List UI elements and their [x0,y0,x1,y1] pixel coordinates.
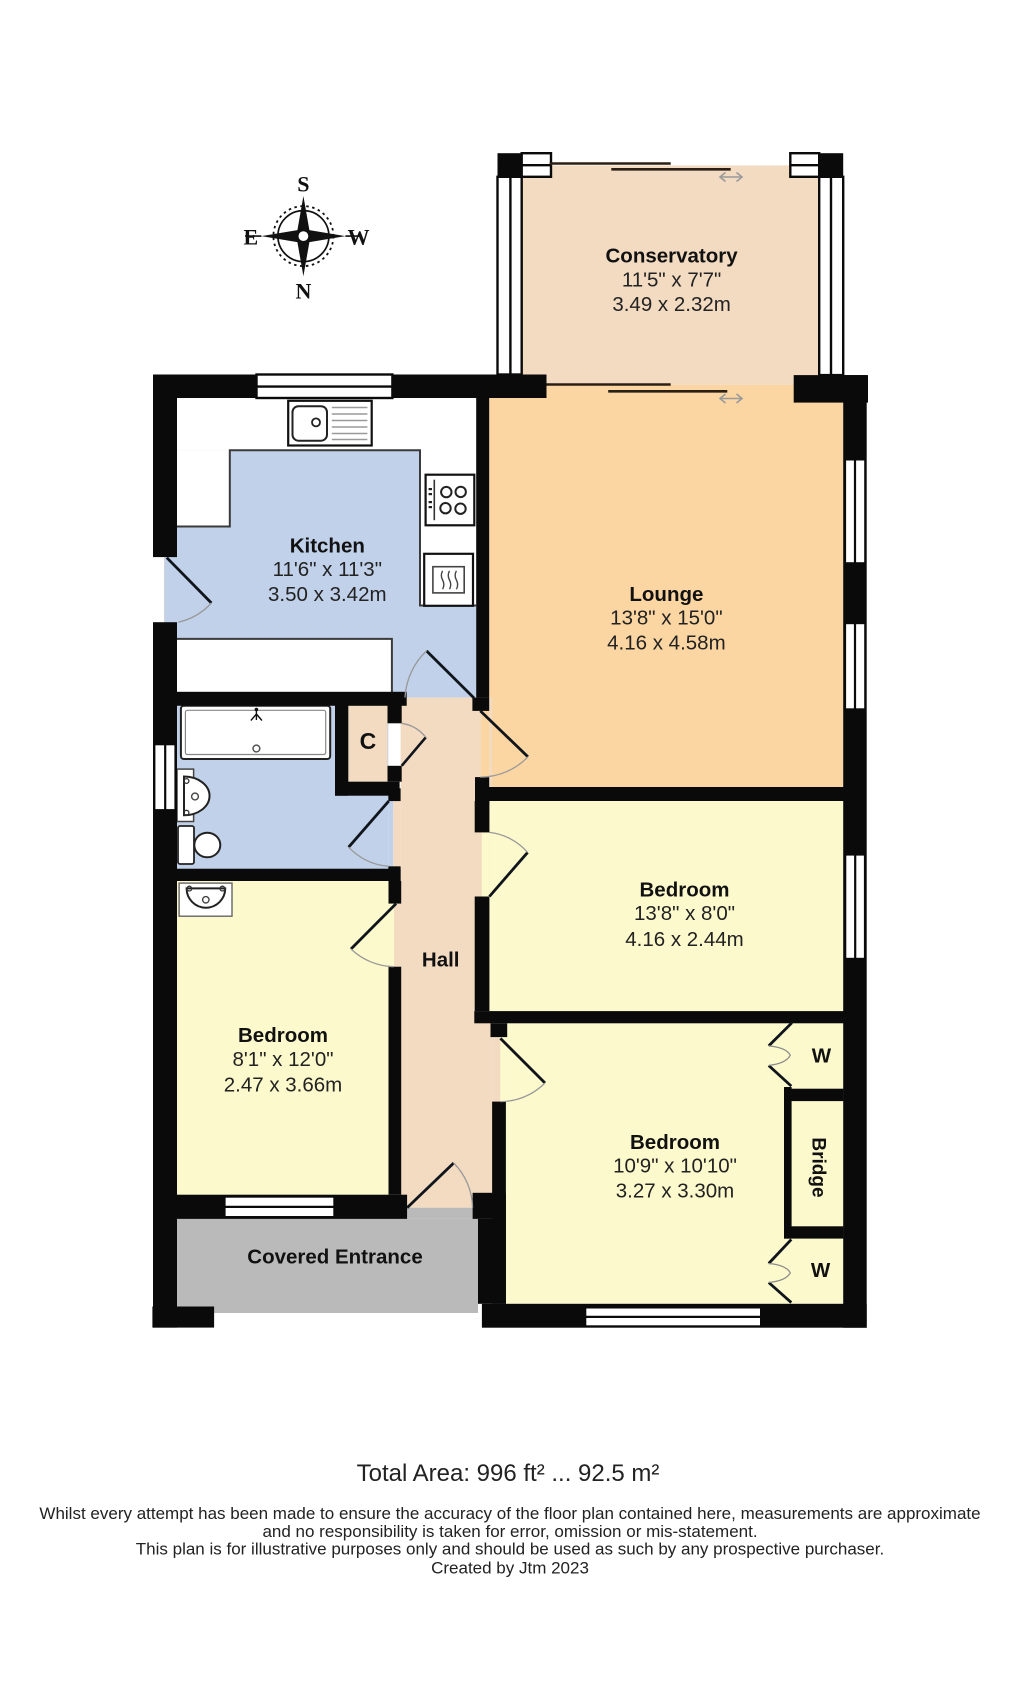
svg-text:Bedroom: Bedroom [238,1024,328,1047]
svg-text:Total Area: 996 ft² ... 92.5 m: Total Area: 996 ft² ... 92.5 m² [357,1460,660,1487]
svg-text:4.16 x 2.44m: 4.16 x 2.44m [625,928,744,951]
svg-text:13'8" x 8'0": 13'8" x 8'0" [634,902,735,925]
svg-text:11'6" x 11'3": 11'6" x 11'3" [273,558,382,581]
svg-text:3.50 x 3.42m: 3.50 x 3.42m [268,583,387,606]
svg-text:2.47 x 3.66m: 2.47 x 3.66m [224,1074,343,1097]
svg-text:8'1" x 12'0": 8'1" x 12'0" [232,1048,333,1071]
svg-text:Whilst every attempt has been: Whilst every attempt has been made to en… [39,1504,980,1523]
svg-text:W: W [348,225,370,250]
svg-text:Bedroom: Bedroom [630,1131,720,1154]
svg-text:C: C [360,728,377,754]
svg-text:E: E [243,225,258,250]
svg-text:Covered Entrance: Covered Entrance [247,1246,422,1269]
svg-text:N: N [295,279,311,304]
svg-text:Bedroom: Bedroom [640,879,730,902]
svg-text:Hall: Hall [422,949,460,972]
svg-text:W: W [811,1259,831,1282]
svg-text:13'8" x 15'0": 13'8" x 15'0" [610,607,722,630]
svg-text:3.27 x 3.30m: 3.27 x 3.30m [616,1180,735,1203]
svg-text:4.16 x 4.58m: 4.16 x 4.58m [607,632,726,655]
svg-text:Kitchen: Kitchen [290,534,365,557]
svg-text:S: S [297,172,309,197]
svg-text:W: W [812,1045,832,1068]
svg-text:Bridge: Bridge [808,1137,829,1197]
svg-text:Lounge: Lounge [629,583,703,606]
svg-text:11'5" x 7'7": 11'5" x 7'7" [622,268,722,291]
svg-text:Created by Jtm 2023: Created by Jtm 2023 [431,1559,589,1578]
svg-text:This plan is for illustrative: This plan is for illustrative purposes o… [136,1540,884,1559]
svg-text:and no responsibility is taken: and no responsibility is taken for error… [262,1522,757,1541]
svg-text:10'9" x 10'10": 10'9" x 10'10" [613,1155,737,1178]
svg-text:Conservatory: Conservatory [606,245,739,268]
svg-text:3.49 x 2.32m: 3.49 x 2.32m [612,293,731,316]
